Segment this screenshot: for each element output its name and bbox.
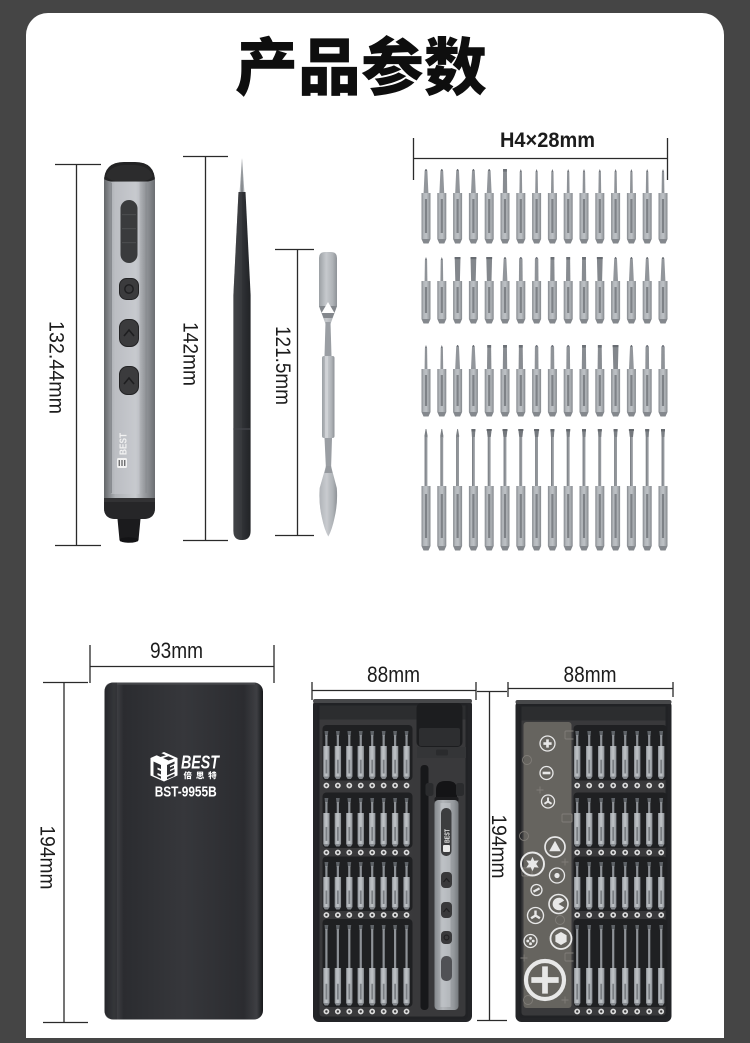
svg-text:H4×28mm: H4×28mm xyxy=(500,129,595,152)
svg-text:194mm: 194mm xyxy=(36,826,59,890)
svg-text:194mm: 194mm xyxy=(487,815,510,879)
svg-text:142mm: 142mm xyxy=(179,322,202,386)
svg-text:93mm: 93mm xyxy=(150,638,203,663)
svg-text:121.5mm: 121.5mm xyxy=(271,326,294,405)
svg-text:BEST: BEST xyxy=(119,433,130,455)
svg-text:BEST: BEST xyxy=(443,829,452,843)
svg-text:88mm: 88mm xyxy=(564,662,617,687)
svg-text:BST-9955B: BST-9955B xyxy=(155,785,217,801)
svg-text:132.44mm: 132.44mm xyxy=(45,321,68,414)
svg-text:BEST: BEST xyxy=(181,753,221,773)
svg-text:88mm: 88mm xyxy=(367,662,420,687)
